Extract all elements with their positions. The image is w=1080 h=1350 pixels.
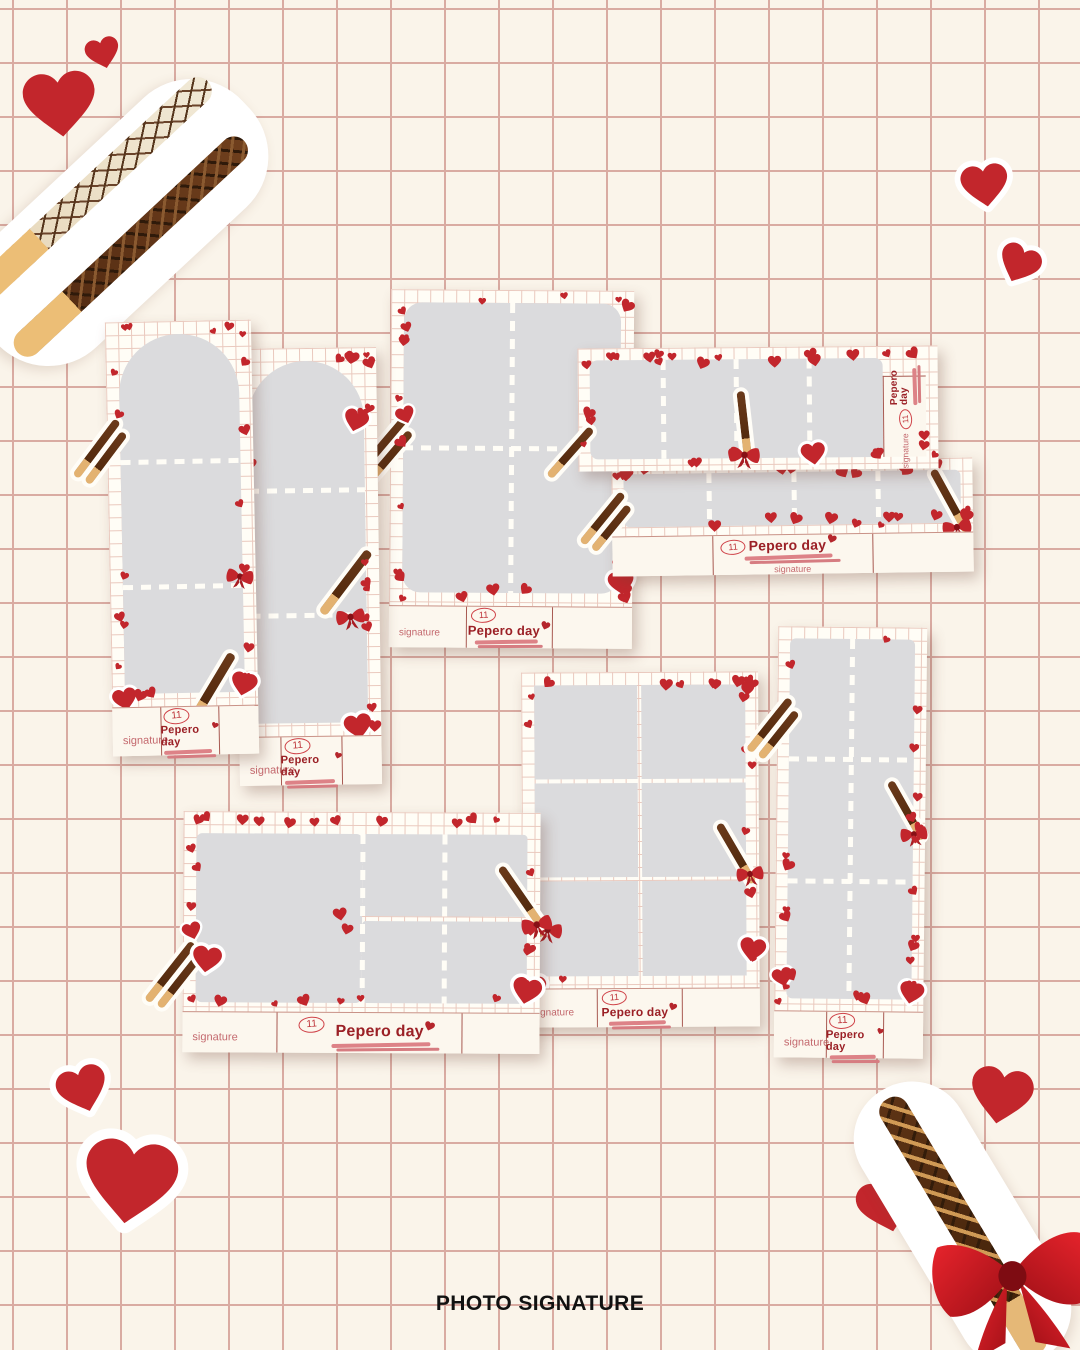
frame-footer: signature 11 Pepero day — [182, 1011, 539, 1054]
heart-icon — [191, 814, 205, 828]
heart-icon — [904, 345, 922, 362]
heart-icon — [691, 458, 703, 469]
heart-icon — [238, 356, 251, 369]
heart-icon — [21, 68, 100, 141]
day-number-badge: 11 — [284, 737, 312, 755]
page-title: PHOTO SIGNATURE — [0, 1292, 1080, 1316]
heart-icon — [394, 569, 403, 578]
heart-icon — [113, 662, 123, 672]
signature-label: signature — [900, 433, 910, 468]
red-bow-icon — [728, 442, 762, 471]
day-number-badge: 11 — [298, 1016, 325, 1034]
heart-sticker-icon — [184, 938, 229, 980]
heart-icon — [124, 322, 134, 332]
pepero-day-label: 11 Pepero day — [466, 607, 552, 649]
day-number-badge: 11 — [163, 707, 191, 725]
frame-footer: 11 Pepero day signature — [612, 531, 974, 576]
signature-label: signature — [399, 627, 440, 638]
heart-icon — [966, 1063, 1037, 1130]
heart-icon — [239, 331, 246, 338]
heart-icon — [745, 677, 760, 691]
red-bow-icon — [224, 564, 255, 591]
heart-icon — [344, 349, 361, 365]
heart-icon — [329, 814, 343, 827]
heart-icon — [344, 352, 357, 364]
frame-card-landscape-1-plus-4: signature 11 Pepero day — [182, 811, 540, 1054]
heart-icon — [185, 901, 196, 911]
red-bow-icon — [334, 604, 367, 633]
heart-icon — [253, 817, 264, 827]
heart-icon — [332, 352, 345, 365]
heart-icon — [465, 811, 481, 827]
heart-icon — [911, 934, 920, 942]
frame-card-grid-2x3-portrait: signature 11 Pepero day — [521, 671, 760, 1027]
heart-icon — [361, 355, 378, 371]
day-number-badge: 11 — [601, 989, 627, 1006]
heart-icon — [363, 352, 371, 359]
frame-card-vertical-strip-arch-left: signature 11 Pepero day — [105, 320, 259, 757]
heart-icon — [209, 327, 218, 336]
day-number-badge: 11 — [471, 607, 497, 624]
pepero-day-label: 11 Pepero day — [280, 737, 342, 786]
heart-icon — [121, 323, 130, 331]
heart-sticker-icon — [948, 152, 1022, 221]
heart-icon — [375, 815, 389, 828]
heart-icon — [612, 472, 622, 481]
pepero-day-label: Pepero day — [889, 365, 910, 405]
signature-label: signature — [774, 564, 811, 575]
frame-card-vertical-strip-2x3: signature 11 Pepero day — [774, 626, 928, 1059]
heart-icon — [491, 816, 500, 825]
heart-icon — [309, 818, 320, 828]
pepero-day-label: 11 Pepero day — [826, 1012, 883, 1059]
heart-icon — [912, 792, 923, 802]
signature-label: signature — [192, 1031, 237, 1043]
heart-icon — [237, 814, 250, 826]
heart-sticker-icon — [732, 931, 773, 970]
frame-footer: signature 11 Pepero day — [112, 705, 259, 757]
frame-card-horizontal-strip-top: signature 11 Pepero day — [577, 345, 938, 471]
red-bow-icon — [899, 822, 930, 849]
frame-footer: signature 11 Pepero day — [774, 1010, 923, 1059]
heart-icon — [83, 34, 124, 73]
heart-icon — [523, 719, 535, 730]
day-number-badge: 11 — [829, 1012, 856, 1030]
heart-icon — [748, 761, 757, 769]
heart-sticker-icon — [223, 664, 265, 704]
heart-sticker-icon — [58, 1116, 201, 1251]
heart-icon — [615, 296, 622, 302]
frame-card-horizontal-strip-bottom: 11 Pepero day signature — [611, 457, 974, 576]
heart-icon — [108, 368, 118, 378]
heart-icon — [929, 450, 940, 460]
frame-footer: signature 11 Pepero day — [523, 987, 760, 1027]
heart-sticker-icon — [891, 974, 931, 1012]
pepero-day-label: 11 Pepero day — [276, 1013, 461, 1054]
red-bow-icon — [735, 862, 765, 889]
day-number-badge: 11 — [720, 539, 747, 556]
frame-footer-side: signature 11 Pepero day — [883, 376, 927, 457]
heart-icon — [451, 818, 463, 829]
pepero-day-label: 11 Pepero day signature — [712, 534, 873, 575]
heart-icon — [688, 459, 697, 467]
poster-canvas: signature 11 Pepero day signature 11 Pe — [0, 0, 1080, 1350]
frame-footer: signature 11 Pepero day — [239, 735, 382, 786]
signature-label: signature — [784, 1036, 829, 1048]
pepero-day-label: 11 Pepero day — [597, 989, 682, 1027]
heart-icon — [881, 348, 893, 359]
heart-sticker-icon — [982, 228, 1057, 300]
heart-icon — [223, 321, 235, 332]
heart-icon — [560, 291, 569, 299]
heart-icon — [282, 817, 296, 830]
heart-sticker-icon — [794, 436, 832, 472]
heart-icon — [332, 907, 348, 922]
heart-icon — [652, 348, 664, 360]
heart-icon — [618, 297, 637, 315]
heart-icon — [397, 593, 407, 603]
heart-sticker-icon — [503, 969, 550, 1014]
heart-icon — [394, 394, 404, 403]
heart-icon — [199, 810, 214, 825]
red-bow-icon — [921, 1213, 1080, 1350]
heart-icon — [774, 997, 784, 1006]
day-number-badge: 11 — [898, 409, 913, 430]
pepero-day-label: 11 Pepero day — [160, 706, 219, 755]
frame-footer: signature 11 Pepero day — [389, 605, 632, 649]
